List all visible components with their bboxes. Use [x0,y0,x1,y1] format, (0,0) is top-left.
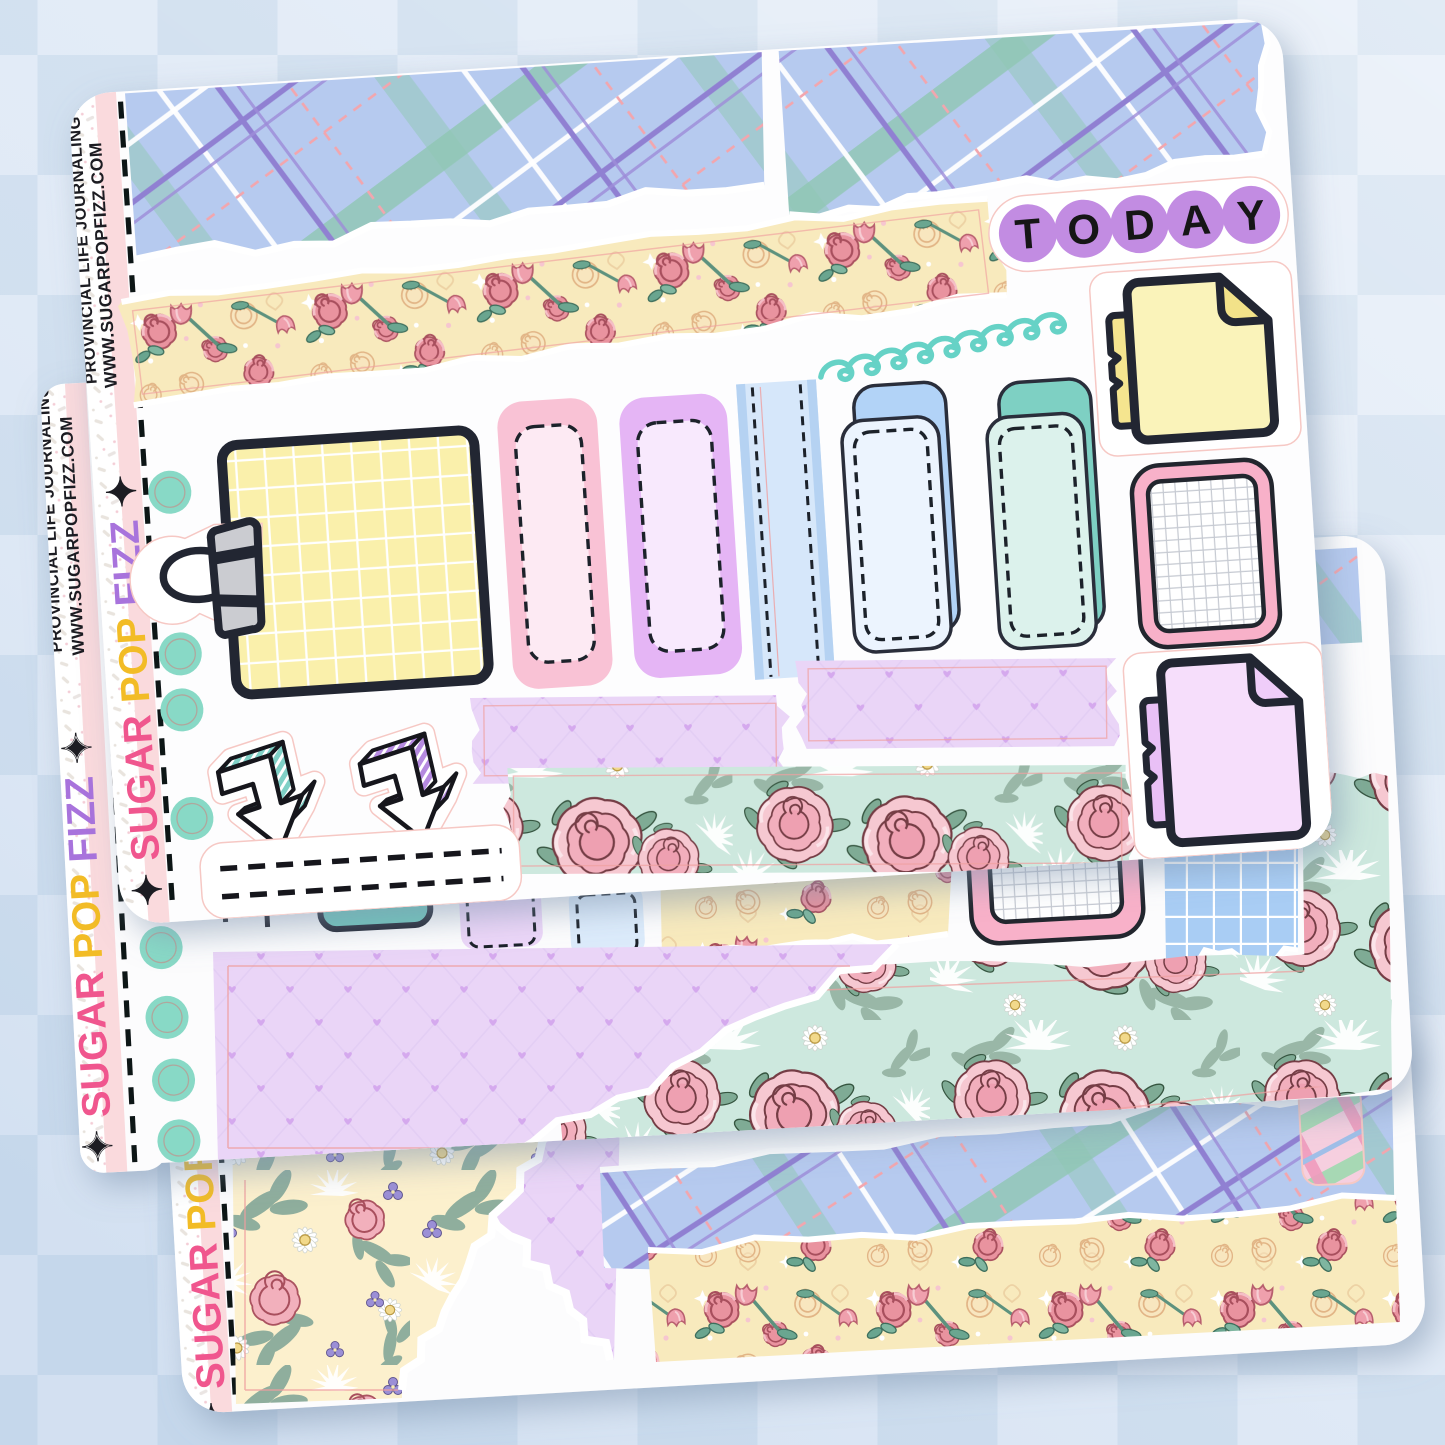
svg-text:T: T [1013,209,1043,258]
svg-text:D: D [1123,200,1157,249]
svg-text:Y: Y [1235,191,1267,240]
svg-text:O: O [1066,204,1102,254]
svg-text:A: A [1178,195,1212,244]
